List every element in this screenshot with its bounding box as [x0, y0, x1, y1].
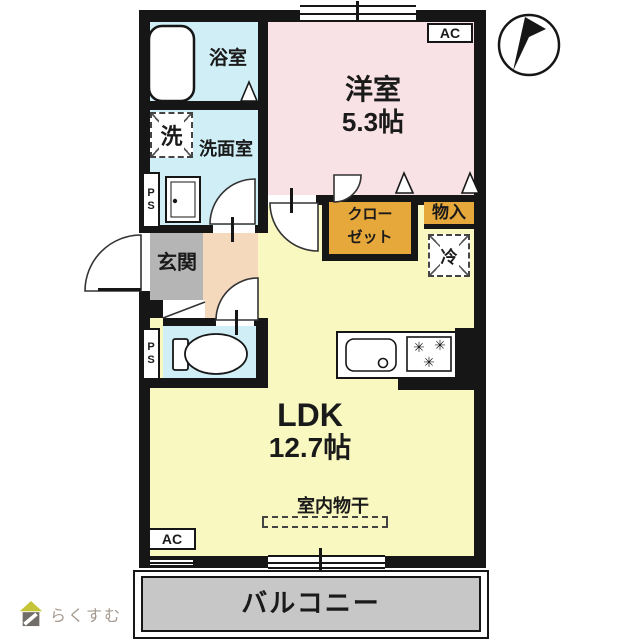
- floor-plan: クロー ゼット 物入 冷 洗 PS PS AC AC ✳ ✳ ✳: [0, 0, 640, 640]
- closet-label: クロー: [322, 203, 418, 227]
- western-room-label: 洋室: [320, 74, 426, 106]
- storage-label: 物入: [424, 202, 474, 224]
- washroom-door-opening: [213, 225, 255, 233]
- ps-box-top: PS: [142, 172, 160, 228]
- tick-top-window: [356, 1, 359, 22]
- wall-bath-bottom: [150, 101, 258, 110]
- ac-badge-top: AC: [427, 23, 473, 43]
- washer-box: 洗: [150, 112, 193, 158]
- tick-toilet-door: [235, 310, 238, 335]
- balcony-sliding-door: [268, 555, 385, 569]
- wall-toilet-top-a: [163, 318, 216, 326]
- ps-box-bottom: PS: [142, 328, 160, 380]
- window-bottom-left: [150, 558, 193, 567]
- wall-storage-bottom: [424, 224, 474, 229]
- compass-north-icon: [496, 12, 562, 78]
- balcony-label: バルコニー: [141, 576, 481, 632]
- tick-washroom-door: [231, 217, 234, 242]
- wall-kitchen-bottom: [398, 378, 474, 390]
- indoor-drying-rail: [262, 516, 388, 528]
- wall-right: [474, 10, 486, 568]
- indoor-drying-label: 室内物干: [278, 495, 388, 517]
- logo-text: らくすむ: [50, 602, 122, 626]
- logo: らくすむ: [18, 596, 148, 632]
- entrance-step: [163, 300, 205, 320]
- tick-entrance: [98, 288, 141, 291]
- entrance-door-opening: [139, 233, 150, 291]
- washer-label: 洗: [159, 119, 183, 151]
- fridge-label: 冷: [440, 243, 459, 268]
- entrance-door-arc: [85, 235, 141, 291]
- entrance-label: 玄関: [150, 250, 204, 276]
- logo-house-icon: [18, 599, 44, 629]
- fridge-box: 冷: [428, 234, 470, 277]
- wall-step-stub: [150, 300, 163, 318]
- washroom-label: 洗面室: [190, 138, 262, 160]
- tick-western-door: [290, 188, 293, 213]
- ac-badge-bottom: AC: [148, 528, 196, 550]
- wall-western-left: [258, 22, 268, 233]
- ldk-label: LDK: [260, 398, 360, 434]
- bath-label: 浴室: [200, 48, 256, 70]
- wall-washroom-bottom-b: [255, 225, 268, 233]
- ldk-size: 12.7帖: [255, 432, 365, 464]
- western-room-size: 5.3帖: [318, 108, 428, 138]
- closet-label-2: ゼット: [322, 226, 418, 250]
- toilet-floor: [163, 326, 256, 380]
- hallway-floor: [203, 233, 258, 320]
